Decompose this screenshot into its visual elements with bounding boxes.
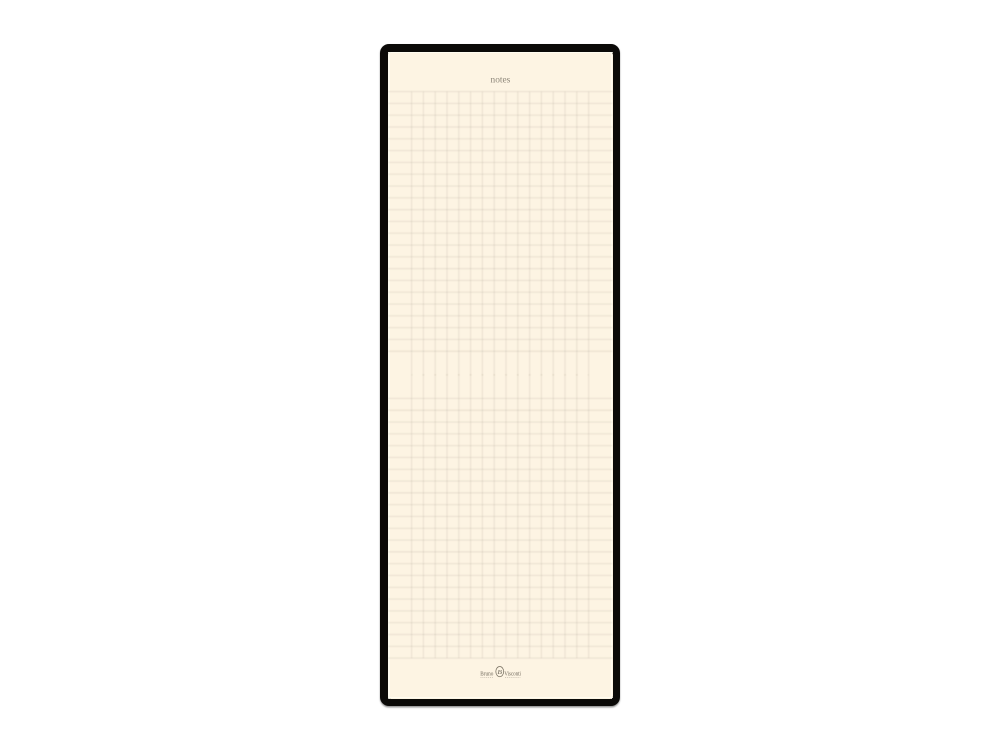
svg-text:notes: notes <box>491 76 511 86</box>
svg-text:Bruno: Bruno <box>480 671 493 678</box>
svg-text:Visconti: Visconti <box>504 671 521 678</box>
svg-text:B: B <box>497 669 502 676</box>
